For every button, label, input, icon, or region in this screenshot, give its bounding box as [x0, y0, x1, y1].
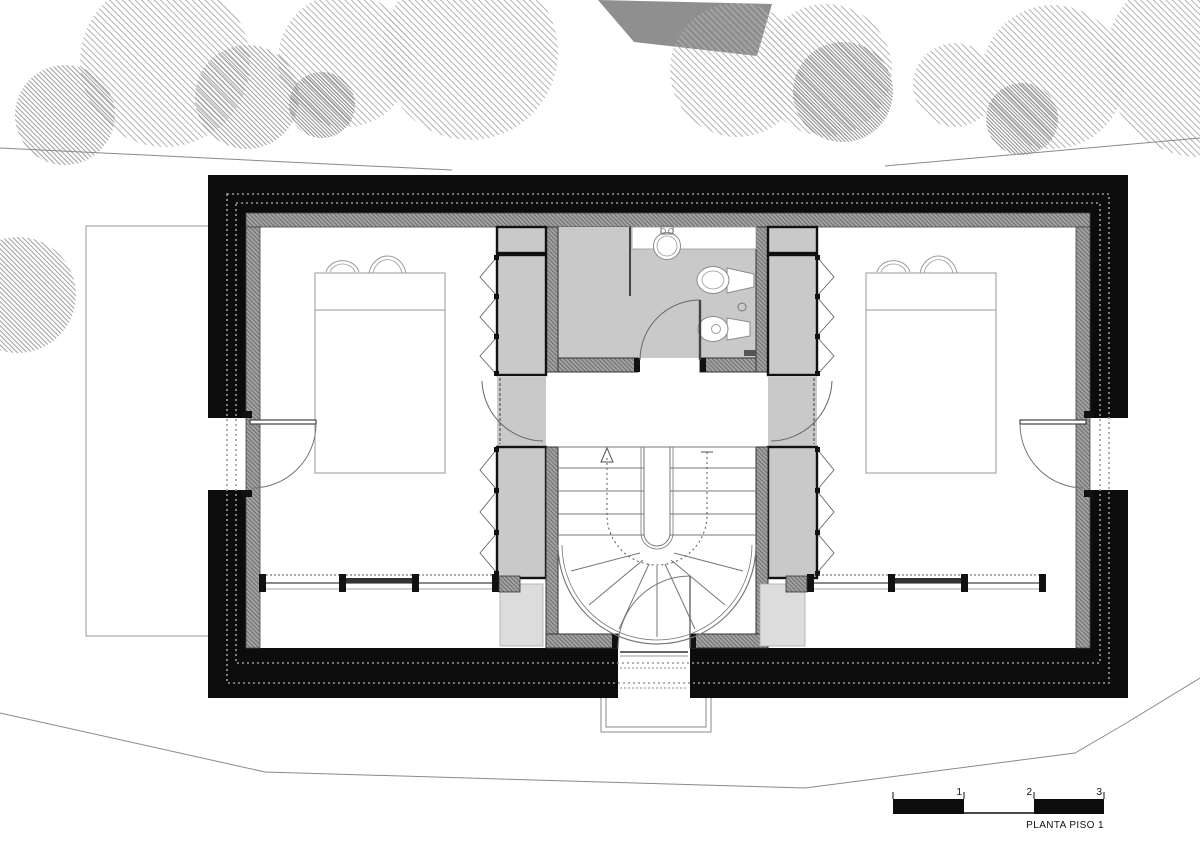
towel-rail-icon	[744, 350, 756, 356]
washbasin-counter	[632, 227, 756, 249]
wardrobe-cell	[768, 227, 817, 253]
tree-canopy	[793, 42, 893, 142]
building	[208, 175, 1128, 732]
interior-lining-wall	[1076, 227, 1090, 648]
interior-lining-wall	[246, 213, 1090, 227]
door-jamb	[700, 358, 706, 372]
bathroom-wall-south	[558, 358, 638, 372]
plan-title: PLANTA PISO 1	[1026, 820, 1104, 831]
floor-plan-canvas: 1 2 3 PLANTA PISO 1	[0, 0, 1200, 848]
wardrobe-cell	[497, 227, 546, 253]
service-box	[500, 584, 543, 646]
tree-canopy	[986, 83, 1058, 155]
door-jamb	[1084, 490, 1094, 497]
door-leaf	[250, 420, 316, 424]
tree-canopy	[1105, 0, 1200, 157]
door-leaf	[1020, 420, 1086, 424]
wardrobe-cell	[768, 255, 817, 375]
stair-wall-south	[690, 634, 768, 648]
bed-outline	[866, 273, 996, 473]
service-box	[760, 584, 805, 646]
window-sash	[345, 578, 415, 583]
door-jamb	[1084, 411, 1094, 418]
door-jamb	[242, 490, 252, 497]
scale-tick-label-2: 2	[1026, 787, 1032, 798]
wardrobe-cell	[497, 255, 546, 375]
bed-outline	[315, 273, 445, 473]
bidet-icon	[698, 317, 750, 342]
wall-stub	[786, 576, 807, 592]
wardrobe-cell	[768, 447, 817, 578]
door-jamb	[242, 411, 252, 418]
floor-plan-page: 1 2 3 PLANTA PISO 1	[0, 0, 1200, 848]
interior-lining-wall	[246, 227, 260, 648]
window-sash	[894, 578, 964, 583]
scale-bar-segment	[1034, 799, 1104, 814]
bed-right	[866, 256, 996, 473]
scale-bar-segment	[893, 799, 964, 814]
wall-stub	[499, 576, 520, 592]
bathroom	[546, 226, 768, 372]
scale-bar: 1 2 3 PLANTA PISO 1	[893, 787, 1104, 831]
tree-canopy	[195, 45, 299, 149]
washbasin-icon	[654, 233, 681, 260]
scale-tick-label-1: 1	[956, 787, 962, 798]
terrace-outline	[86, 226, 210, 636]
stair-wall-west	[546, 447, 558, 648]
scale-tick-label-3: 3	[1096, 787, 1102, 798]
bed-left	[315, 256, 445, 473]
door-jamb	[634, 358, 640, 372]
wardrobe-cell	[497, 447, 546, 578]
balcony-step	[601, 698, 711, 732]
stair-wall-south	[546, 634, 618, 648]
bathroom-wall-south	[700, 358, 756, 372]
bathroom-wall-east	[756, 227, 768, 372]
scale-bar-ticks	[893, 792, 1104, 799]
tree-canopy	[0, 237, 76, 353]
tree-canopy	[289, 72, 355, 138]
bathroom-wall-west	[546, 227, 558, 372]
tree-canopy	[15, 65, 115, 165]
